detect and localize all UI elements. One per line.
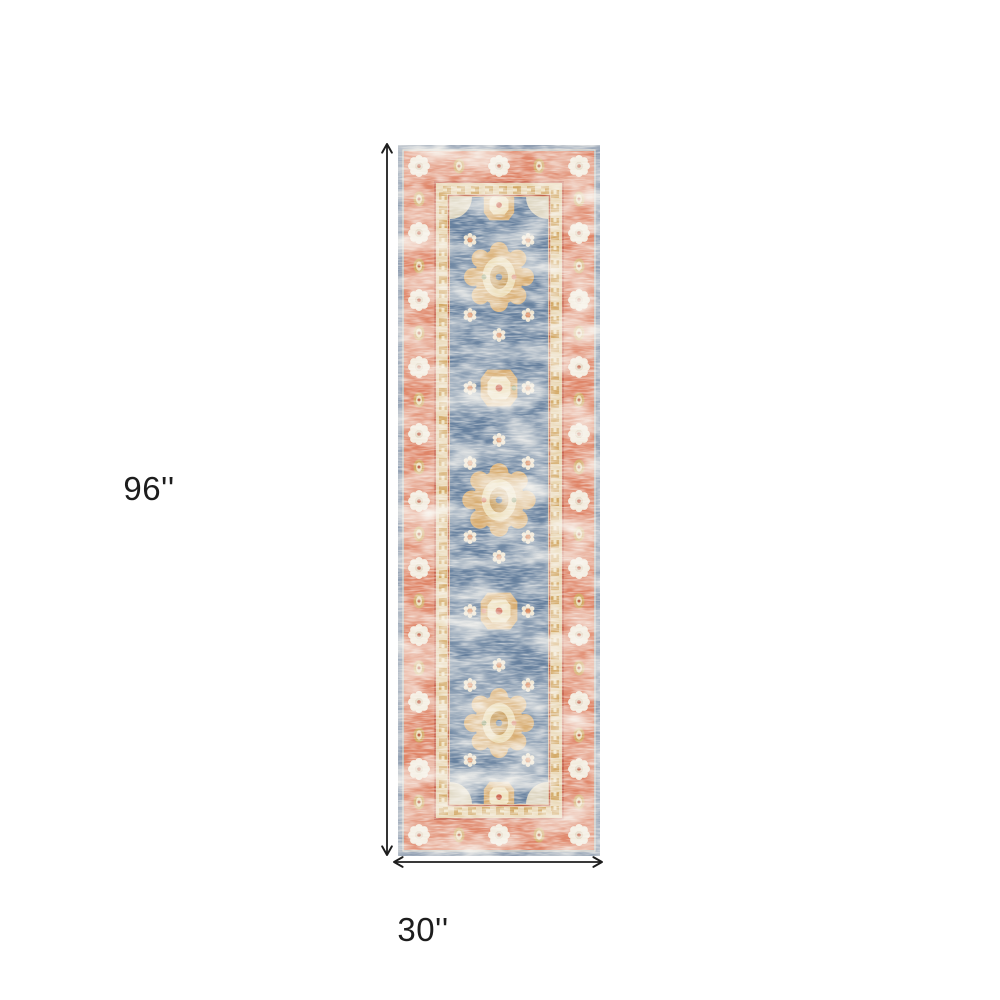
rug-product-image [398,145,600,856]
product-dimension-diagram: 96'' 30'' [0,0,1000,1000]
height-dimension-label: 96'' [103,469,195,509]
rug-artwork [398,145,600,856]
rug-distress-overlay [398,145,600,856]
width-dimension-label: 30'' [377,910,469,950]
